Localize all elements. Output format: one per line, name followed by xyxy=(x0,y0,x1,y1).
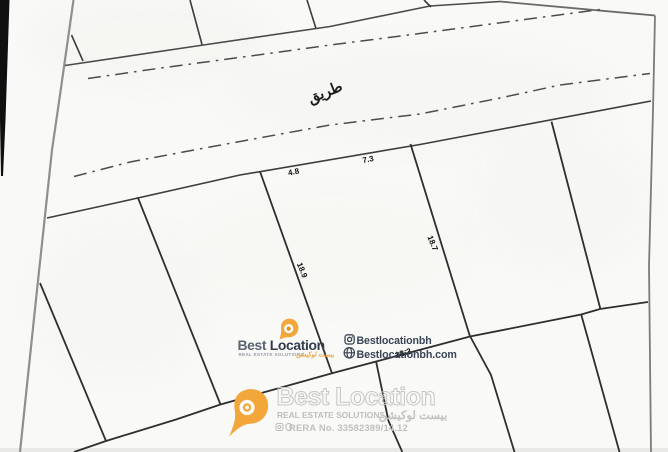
svg-text:بيست لوكيشن: بيست لوكيشن xyxy=(379,409,448,423)
svg-text:REAL ESTATE SOLUTIONS: REAL ESTATE SOLUTIONS xyxy=(277,410,385,420)
svg-text:RERA No. 33582389/14.12: RERA No. 33582389/14.12 xyxy=(289,422,408,433)
svg-text:Bestlocationbh.com: Bestlocationbh.com xyxy=(357,349,457,361)
svg-text:Best Location: Best Location xyxy=(277,383,436,411)
svg-text:بيست لوكيشن: بيست لوكيشن xyxy=(296,352,334,359)
svg-text:Best Location: Best Location xyxy=(238,337,325,353)
svg-text:Bestlocationbh: Bestlocationbh xyxy=(357,335,432,347)
svg-text:REAL ESTATE SOLUTIONS: REAL ESTATE SOLUTIONS xyxy=(239,352,304,357)
